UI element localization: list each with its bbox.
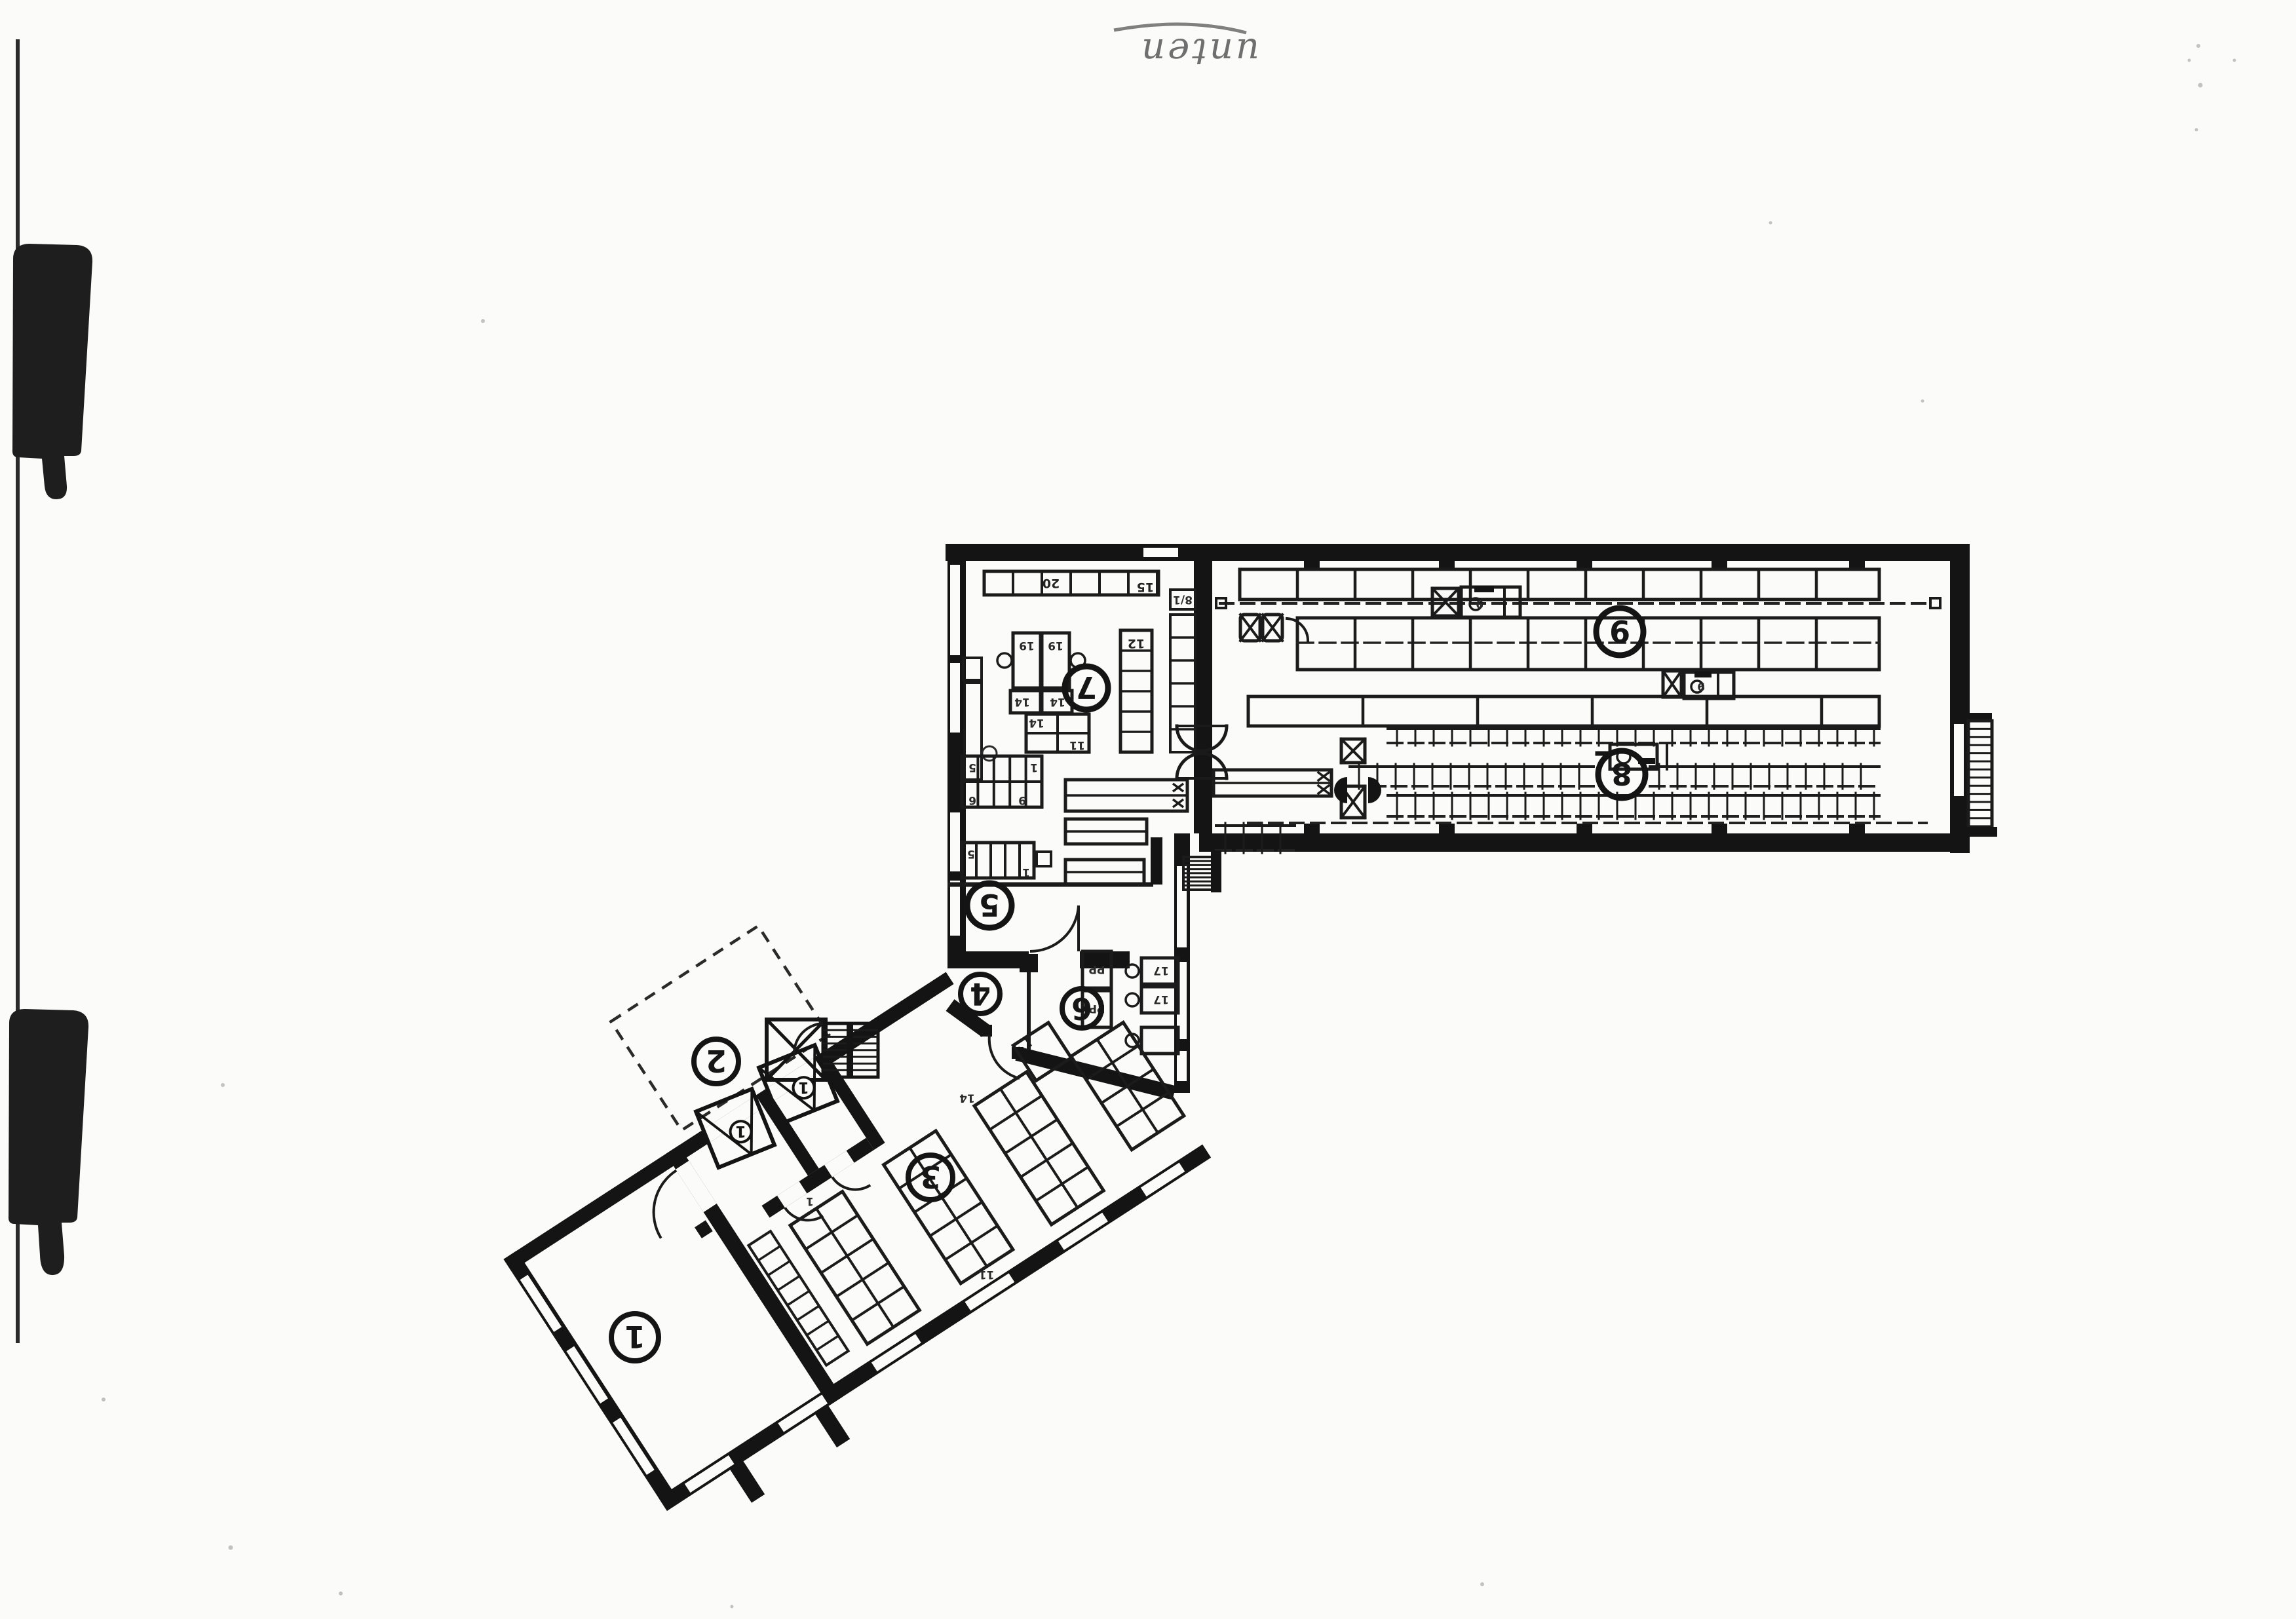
pattern-line [989, 1095, 1042, 1130]
hourglass-symbol-right [1368, 777, 1381, 803]
shelf-tag: 8/1 [1173, 593, 1193, 606]
exterior-wall-stub [729, 1459, 765, 1503]
paper-speck [102, 1398, 105, 1401]
stair-stringer [847, 1023, 853, 1077]
room-label-8: 8 [1598, 751, 1645, 798]
pattern-line [871, 1334, 921, 1371]
grid-tag: 11 [979, 1268, 995, 1281]
chair-icon [1126, 964, 1139, 978]
pattern-line [788, 1291, 810, 1305]
wall-cabinet-small [963, 658, 982, 680]
pattern-line [807, 1321, 829, 1335]
top-wall-window-gap [1143, 548, 1178, 557]
pattern-line [1058, 1213, 1108, 1250]
svg-text:2: 2 [706, 1043, 727, 1078]
floor-plan-drawing: unten [0, 0, 2296, 1619]
room-label-9: 9 [1596, 608, 1643, 655]
desk-tag: 17 [1153, 964, 1169, 977]
exterior-wall-stub [814, 1404, 850, 1448]
svg-text:1: 1 [624, 1319, 645, 1354]
paper-speck [2196, 44, 2200, 48]
room-label-7: 7 [1065, 666, 1108, 710]
elevator-label: 1 [798, 1078, 809, 1097]
pattern-line [1021, 1143, 1073, 1177]
paper-speck [481, 319, 485, 323]
pattern-line [768, 1261, 790, 1276]
binder-blob-top [12, 244, 92, 499]
desk-tag: 19 [1048, 639, 1063, 652]
corridor-wall-chunk [1151, 837, 1162, 885]
middle-wing: 20 15 19 19 14 14 14 11 12 8/1 [947, 544, 1221, 1093]
room-label-5: 5 [967, 883, 1012, 928]
paper-speck [1921, 400, 1924, 403]
pattern-line [685, 1455, 735, 1493]
pattern-line [950, 881, 960, 936]
binder-blob-bottom [9, 1009, 88, 1275]
paper-speck [339, 1591, 343, 1595]
pattern-line [837, 1263, 889, 1297]
paper-specks [102, 44, 2236, 1609]
grid-tag: 1 [806, 1194, 814, 1208]
pattern-line [950, 663, 960, 733]
paper-speck [2195, 128, 2198, 132]
pattern-line [1577, 824, 1592, 833]
hall-unit-tag: 9 [1697, 679, 1705, 693]
paper-speck [1769, 221, 1772, 225]
room-label-4: 4 [961, 974, 1000, 1014]
pattern-line [1117, 1092, 1169, 1126]
pattern-line [821, 1239, 873, 1273]
paper-speck [731, 1605, 734, 1609]
pattern-line [1712, 824, 1727, 833]
exterior-stair-east [1966, 713, 1997, 837]
paper-speck [221, 1083, 225, 1087]
scanned-floor-plan-page: unten [0, 0, 2296, 1619]
grid-tag: 14 [959, 1091, 975, 1104]
hall-bottom-wall [1199, 833, 1970, 852]
right-wall-window-slot [1954, 724, 1964, 796]
svg-text:6: 6 [1071, 991, 1092, 1026]
shelf-band [1240, 569, 1879, 600]
hall-top-wall [946, 544, 1970, 561]
room5-bottom-wall-left [947, 951, 1029, 968]
svg-text:8: 8 [1611, 756, 1632, 791]
handwritten-note: unten [1139, 30, 1259, 73]
pattern-line [1849, 824, 1865, 833]
pattern-line [950, 812, 960, 871]
paper-speck [229, 1546, 233, 1550]
paper-speck [2188, 59, 2191, 62]
pattern-line [1439, 824, 1455, 833]
hourglass-symbol-left [1334, 777, 1347, 803]
pattern-line [946, 1226, 998, 1260]
shelf-tag: 5 [968, 761, 976, 774]
handwritten-note-group: unten [1114, 24, 1259, 73]
hall-counter-band [1248, 696, 1879, 726]
desk-tag: 14 [1014, 695, 1030, 708]
elevator-label: 1 [735, 1122, 746, 1141]
stack-grid [974, 1072, 1103, 1225]
shelf-block-b: 5 1 [962, 843, 1051, 879]
shelf-tag: 1 [1030, 761, 1038, 774]
desk-tag: 14 [1050, 695, 1065, 708]
chair-icon [997, 653, 1012, 668]
stack-grid [790, 1192, 919, 1344]
paper-speck [2233, 59, 2236, 62]
room2-dashed-outline [611, 926, 829, 1130]
desk-tag: 19 [1019, 639, 1035, 652]
paper-speck [1480, 1582, 1484, 1586]
pattern-line [1177, 866, 1187, 947]
paper-speck [2198, 83, 2203, 88]
desk-tag: 17 [1153, 993, 1169, 1006]
hall-trolley-unit-2: 9 [1663, 671, 1734, 698]
pattern-line [778, 1276, 800, 1291]
room-label-1: 1 [611, 1314, 659, 1361]
pattern-line [950, 565, 960, 655]
shelf-tag: 1 [1022, 866, 1030, 879]
pattern-line [758, 1246, 780, 1261]
door-post [695, 1220, 713, 1238]
room9-shelf-band-b [1297, 618, 1879, 670]
svg-text:4: 4 [970, 976, 991, 1012]
svg-text:3: 3 [920, 1159, 941, 1194]
room5-door-arc [1030, 905, 1079, 951]
svg-text:5: 5 [979, 887, 1000, 923]
pattern-line [1304, 824, 1320, 833]
desk [1141, 1027, 1178, 1054]
chair-icon [1126, 993, 1139, 1006]
dash-end-cap [1930, 598, 1940, 608]
shelf-tag: 6 [968, 793, 976, 807]
room-label-2: 2 [694, 1039, 738, 1084]
pattern-line [816, 1336, 839, 1350]
table-tag: 11 [1069, 738, 1085, 752]
shelf-tag: 20 [1043, 576, 1060, 590]
room9-shelf-band-a [1240, 569, 1879, 600]
shelf-tag: 9 [1018, 793, 1026, 807]
hall-left-wall-lower [1194, 778, 1212, 833]
corridor-counters [1065, 780, 1187, 885]
shelf-block-a: 5 6 1 9 [962, 756, 1042, 807]
hall-unit-tag: 9 [1476, 597, 1483, 610]
lower-wing: 1 11 14 [427, 788, 1233, 1544]
stack-grid [884, 1131, 1013, 1284]
pattern-line [1005, 1120, 1058, 1154]
pattern-line [1177, 1051, 1187, 1081]
hall-trolley-unit-1: 9 [1432, 586, 1520, 617]
scan-artifacts-left-edge [9, 39, 92, 1343]
svg-text:7: 7 [1076, 670, 1097, 705]
pattern-line [1036, 1167, 1088, 1201]
svg-text:9: 9 [1609, 613, 1630, 649]
pattern-line [930, 1202, 982, 1236]
table-tag: 14 [1029, 716, 1044, 729]
pp-tag: PP [1089, 962, 1105, 976]
pattern-line [852, 1286, 904, 1320]
pattern-line [1141, 1163, 1185, 1197]
pattern-line [797, 1306, 819, 1320]
shelf-tag: 5 [967, 847, 975, 860]
shelf-tag: 12 [1128, 636, 1145, 651]
shelf-tag: 15 [1137, 580, 1154, 594]
